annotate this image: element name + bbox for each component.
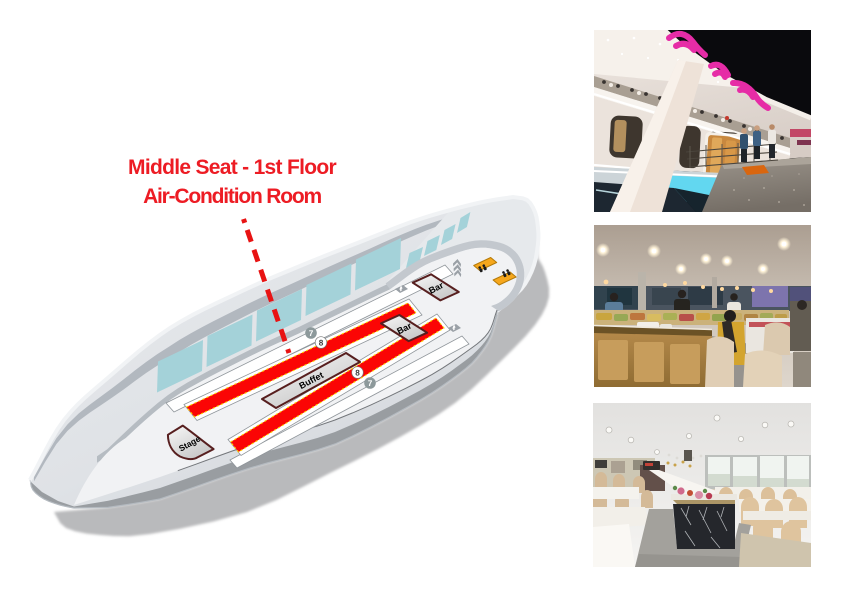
svg-text:7: 7 bbox=[368, 379, 373, 388]
svg-text:8: 8 bbox=[319, 339, 324, 348]
svg-text:8: 8 bbox=[355, 369, 360, 378]
svg-text:7: 7 bbox=[309, 329, 314, 338]
